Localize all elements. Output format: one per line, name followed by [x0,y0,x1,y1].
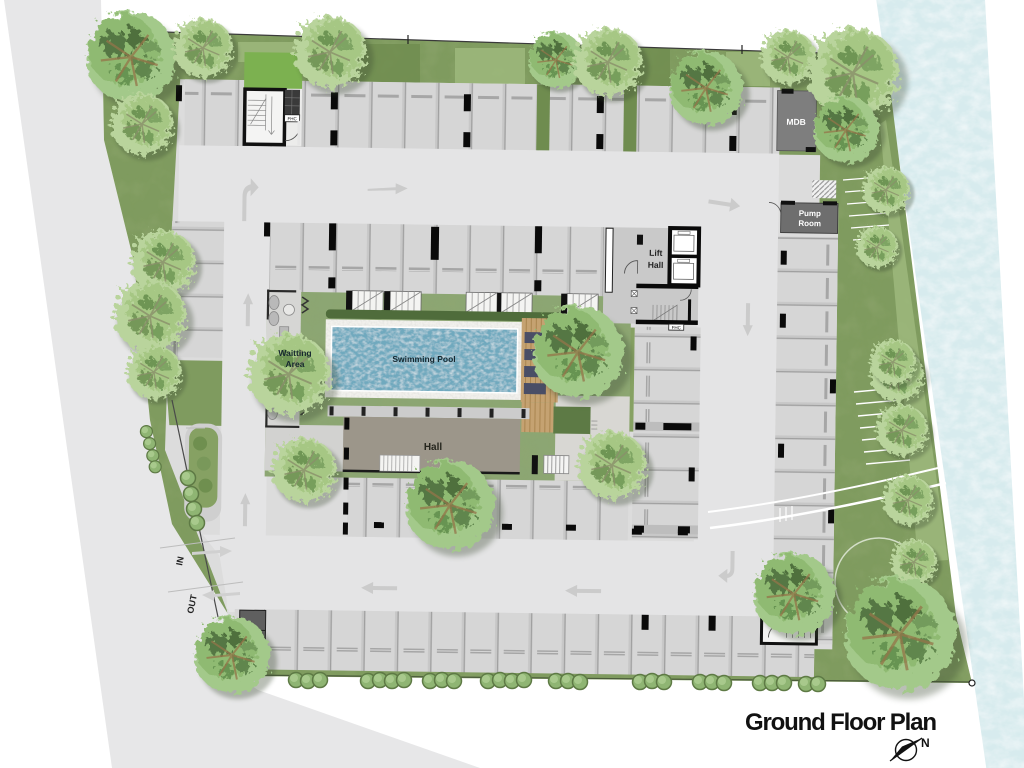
svg-text:Waitting: Waitting [278,348,311,358]
svg-text:Lift: Lift [649,248,663,258]
svg-text:Pump: Pump [799,209,821,218]
svg-text:FHC: FHC [287,116,297,121]
svg-text:Area: Area [286,359,305,369]
svg-text:Hall: Hall [648,260,664,270]
svg-text:Hall: Hall [424,442,443,453]
svg-text:Ground Floor Plan: Ground Floor Plan [745,709,937,736]
svg-text:Room: Room [798,219,821,228]
svg-text:Swimming Pool: Swimming Pool [392,354,455,364]
svg-text:MDB: MDB [786,117,805,127]
svg-text:N: N [921,736,930,750]
svg-text:FHC: FHC [672,325,682,330]
